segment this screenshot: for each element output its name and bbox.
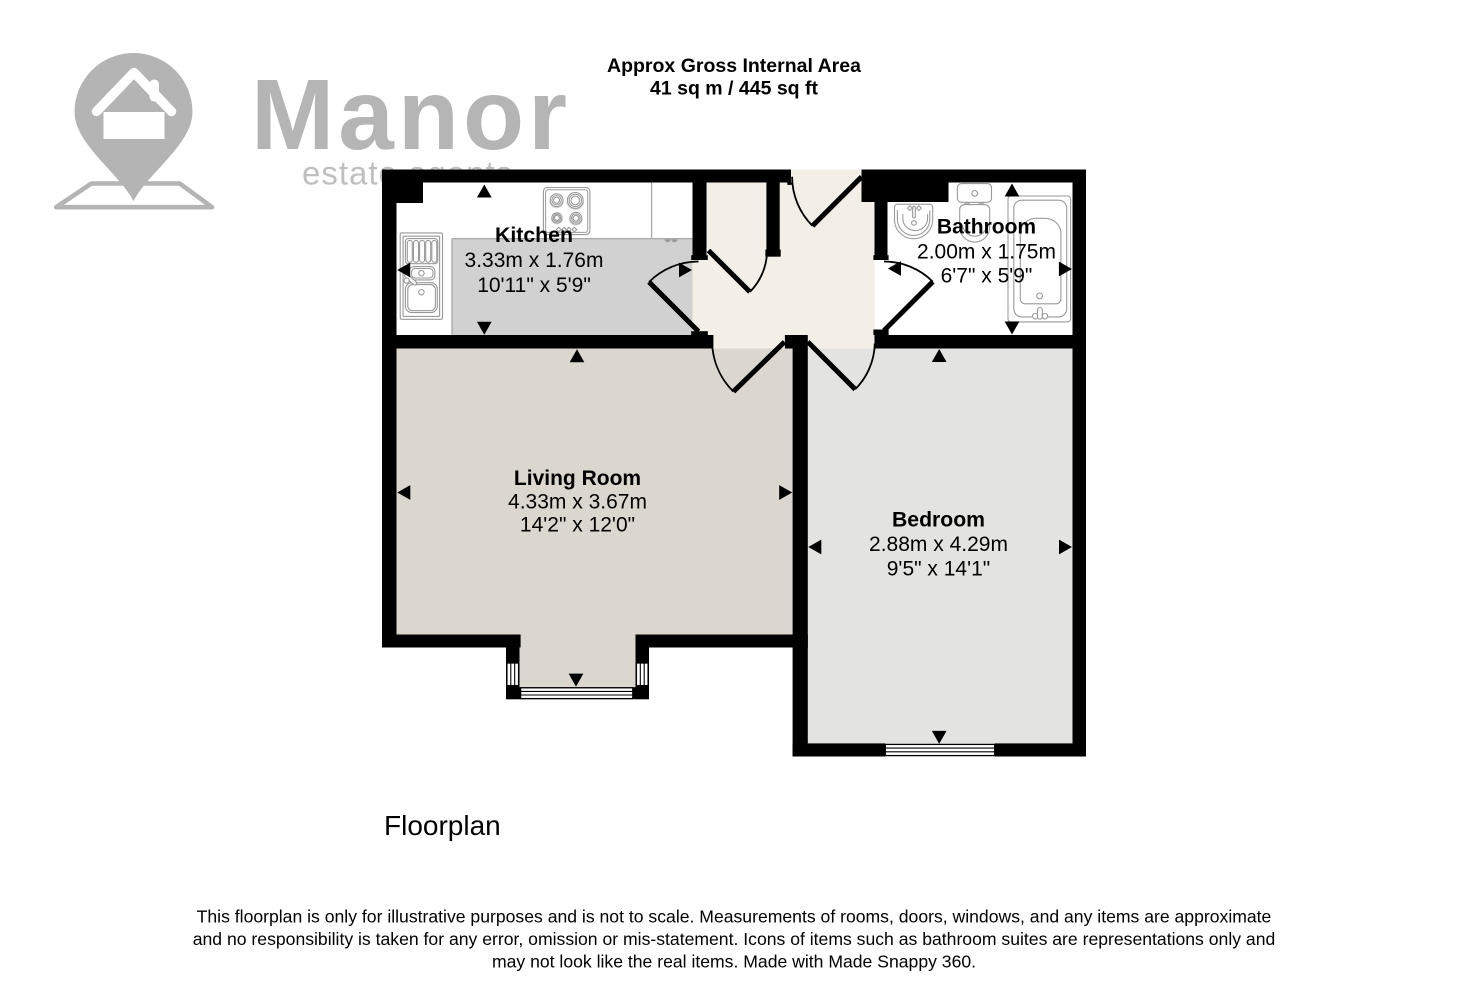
svg-text:and no responsibility is taken: and no responsibility is taken for any e… <box>193 929 1276 949</box>
svg-text:Bedroom: Bedroom <box>892 509 985 532</box>
svg-text:may not look like the real ite: may not look like the real items. Made w… <box>492 952 976 972</box>
svg-text:4.33m x 3.67m: 4.33m x 3.67m <box>508 490 647 513</box>
svg-text:41 sq m / 445 sq ft: 41 sq m / 445 sq ft <box>650 78 818 100</box>
svg-text:2.00m x 1.75m: 2.00m x 1.75m <box>917 240 1056 263</box>
svg-text:2.88m x 4.29m: 2.88m x 4.29m <box>869 533 1008 556</box>
svg-text:10'11" x 5'9": 10'11" x 5'9" <box>477 274 591 297</box>
svg-text:Bathroom: Bathroom <box>937 216 1036 239</box>
svg-text:Living Room: Living Room <box>514 467 641 490</box>
svg-text:This floorplan is only for ill: This floorplan is only for illustrative … <box>197 907 1272 927</box>
svg-text:Approx Gross Internal Area: Approx Gross Internal Area <box>607 55 861 77</box>
svg-text:14'2" x 12'0": 14'2" x 12'0" <box>520 513 635 536</box>
svg-text:6'7" x 5'9": 6'7" x 5'9" <box>941 265 1033 288</box>
svg-text:Floorplan: Floorplan <box>384 810 501 841</box>
svg-text:3.33m x 1.76m: 3.33m x 1.76m <box>465 249 604 272</box>
svg-text:Kitchen: Kitchen <box>495 223 573 247</box>
svg-text:9'5" x 14'1": 9'5" x 14'1" <box>887 557 991 580</box>
